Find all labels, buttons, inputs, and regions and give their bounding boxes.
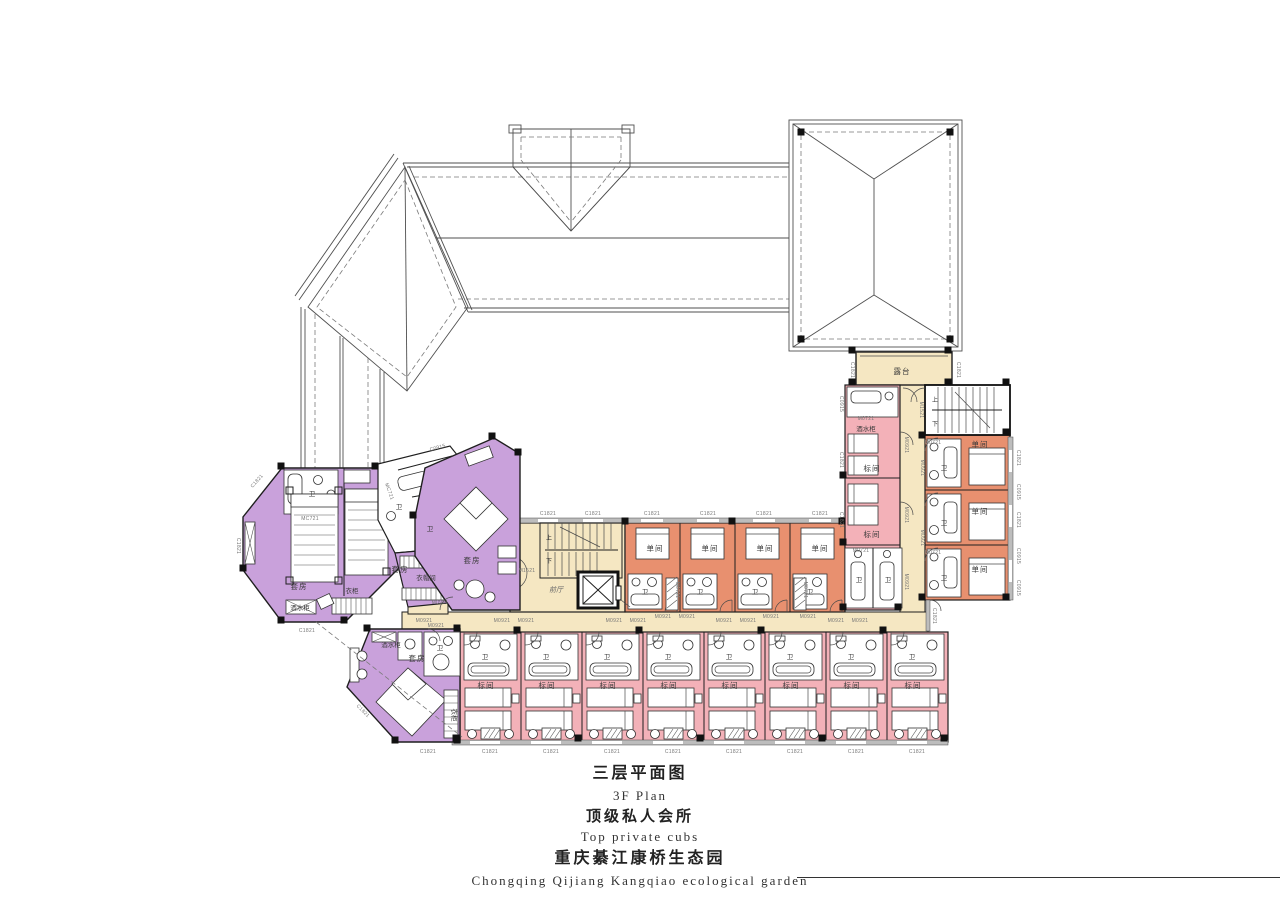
window-code: C1821: [585, 511, 601, 517]
bottom-band-standard-rooms: [452, 632, 948, 745]
door-code: M0921: [655, 614, 672, 620]
wine-cabinet-label: 酒水柜: [290, 603, 310, 612]
roof-hip: [789, 120, 962, 351]
bath-label: 卫: [396, 503, 403, 511]
door-code: M0921: [630, 618, 647, 624]
window-code: C1821: [482, 749, 498, 755]
bath-label: 卫: [885, 576, 892, 584]
door-code: M0921: [763, 614, 780, 620]
suite-label: 套房: [409, 653, 426, 663]
standard-room-label: 标间: [783, 680, 800, 690]
door-code: M0921: [903, 437, 909, 454]
window-code: C1821: [250, 473, 265, 489]
project-title-zh: 重庆綦江康桥生态园: [0, 847, 1280, 871]
stair-down-label: 下: [932, 421, 938, 428]
door-code: M0921: [679, 614, 696, 620]
standard-room-label: 标间: [661, 680, 678, 690]
standard-room-label: 标间: [864, 463, 881, 473]
wine-cabinet-label: 酒水柜: [381, 640, 401, 649]
door-code: M0921: [428, 623, 445, 629]
door-code: M0921: [432, 600, 449, 606]
window-code: C1821: [756, 511, 772, 517]
window-code: C1821: [838, 452, 844, 468]
title-block: 三层平面图 3F Plan 顶级私人会所 Top private cubs 重庆…: [0, 762, 1280, 891]
bath-label: 卫: [856, 576, 863, 584]
door-code: M0921: [903, 574, 909, 591]
door-code: M0721: [925, 550, 942, 556]
door-code: M0921: [740, 618, 757, 624]
roof-dormer: [509, 125, 634, 231]
bath-label: 卫: [941, 519, 948, 527]
bath-label: 卫: [941, 574, 948, 582]
door-code: M0721: [925, 440, 942, 446]
door-code: M0721: [858, 416, 875, 422]
floor-title-en: 3F Plan: [0, 786, 1280, 806]
roof-diagonal-band: [295, 154, 468, 391]
club-title-en: Top private cubs: [0, 827, 1280, 847]
door-code: M0921: [518, 618, 535, 624]
club-title-zh: 顶级私人会所: [0, 806, 1280, 827]
bath-label: 卫: [427, 525, 434, 533]
window-code: C1821: [1015, 450, 1021, 466]
wardrobe-label: 衣柜: [346, 586, 360, 595]
single-room-label: 单间: [972, 564, 989, 574]
wardrobe-label: 衣柜: [450, 709, 459, 723]
window-code: C1821: [540, 511, 556, 517]
window-code: C0915: [838, 396, 844, 412]
single-room-label: 单间: [972, 506, 989, 516]
window-code: C1821: [299, 628, 315, 634]
window-code: C1821: [543, 749, 559, 755]
bath-label: 卫: [726, 653, 733, 661]
standard-room-label: 标间: [539, 680, 556, 690]
door-code: M0921: [606, 618, 623, 624]
window-code: C1821: [955, 362, 961, 378]
terrace-label: 露台: [894, 366, 911, 376]
bath-label: 卫: [848, 653, 855, 661]
door-code: M0721: [802, 582, 808, 599]
door-code: M0921: [919, 530, 925, 547]
door-code: M0921: [716, 618, 733, 624]
bath-label: 卫: [941, 464, 948, 472]
door-code: M0721: [674, 582, 680, 599]
window-code: C1821: [812, 511, 828, 517]
standard-room-label: 标间: [864, 529, 881, 539]
bath-label: 卫: [309, 490, 316, 498]
window-code: C1821: [604, 749, 620, 755]
window-code: C1821: [849, 362, 855, 378]
suite-label: 套房: [291, 581, 308, 591]
door-code: M1521: [519, 568, 536, 574]
door-code: M0921: [494, 618, 511, 624]
front-hall-label: 前厅: [549, 586, 565, 594]
door-code: M0921: [852, 618, 869, 624]
bath-label: 卫: [787, 653, 794, 661]
window-code: C0915: [1015, 580, 1021, 596]
project-title-en: Chongqing Qijiang Kangqiao ecological ga…: [0, 871, 1280, 891]
door-code: M1521: [918, 402, 924, 419]
bath-label: 卫: [604, 653, 611, 661]
window-code: C1821: [1015, 512, 1021, 528]
standard-room-label: 标间: [722, 680, 739, 690]
standard-room-label: 标间: [905, 680, 922, 690]
door-code: M0921: [903, 507, 909, 524]
window-code: C1821: [838, 512, 844, 528]
window-code: C1821: [931, 608, 937, 624]
roof-horizontal-band: [403, 163, 789, 312]
window-code: C1821: [909, 749, 925, 755]
single-room-label: 单间: [702, 543, 719, 553]
single-room-label: 单间: [972, 439, 989, 449]
single-room-label: 单间: [757, 543, 774, 553]
standard-room-label: 标间: [600, 680, 617, 690]
window-code: C1821: [726, 749, 742, 755]
bath-label: 卫: [909, 653, 916, 661]
bath-label: 卫: [642, 588, 649, 596]
bath-label: 卫: [437, 644, 444, 652]
bath-label: 卫: [482, 653, 489, 661]
door-code: M0921: [800, 614, 817, 620]
stair-down-label: 下: [546, 558, 552, 565]
door-code: M0721: [853, 548, 870, 554]
window-code: C0915: [1015, 548, 1021, 564]
window-code: C1821: [787, 749, 803, 755]
wine-cabinet-label: 酒水柜: [856, 424, 876, 433]
standard-room-label: 标间: [478, 680, 495, 690]
standard-room-label: 标间: [844, 680, 861, 690]
title-rule-line: [797, 877, 1280, 878]
single-room-label: 单间: [812, 543, 829, 553]
window-code: C1821: [235, 538, 241, 554]
stair-up-label: 上: [932, 396, 938, 404]
window-code: C1821: [420, 749, 436, 755]
suite-label: 套房: [392, 564, 409, 574]
single-room-label: 单间: [647, 543, 664, 553]
roof-vertical-band: [301, 307, 384, 470]
door-code: MC721: [301, 516, 319, 522]
window-code: C0915: [1015, 484, 1021, 500]
window-wall: [510, 518, 845, 523]
floor-plan-sheet: 露台 前厅 上 下 上 下 单间 单间 单间 单间 卫 卫 卫 卫 单间 单间 …: [0, 0, 1280, 905]
cloakroom-label: 衣帽间: [416, 573, 436, 582]
window-code: C1821: [848, 749, 864, 755]
bath-label: 卫: [697, 588, 704, 596]
stair-up-label: 上: [546, 534, 552, 542]
window-code: C1821: [644, 511, 660, 517]
door-code: M0921: [919, 460, 925, 477]
bath-label: 卫: [752, 588, 759, 596]
window-code: C1821: [665, 749, 681, 755]
suite-label: 套房: [464, 555, 481, 565]
bath-label: 卫: [543, 653, 550, 661]
floor-title-zh: 三层平面图: [0, 762, 1280, 786]
door-code: M0921: [828, 618, 845, 624]
window-code: C1821: [700, 511, 716, 517]
bath-label: 卫: [665, 653, 672, 661]
